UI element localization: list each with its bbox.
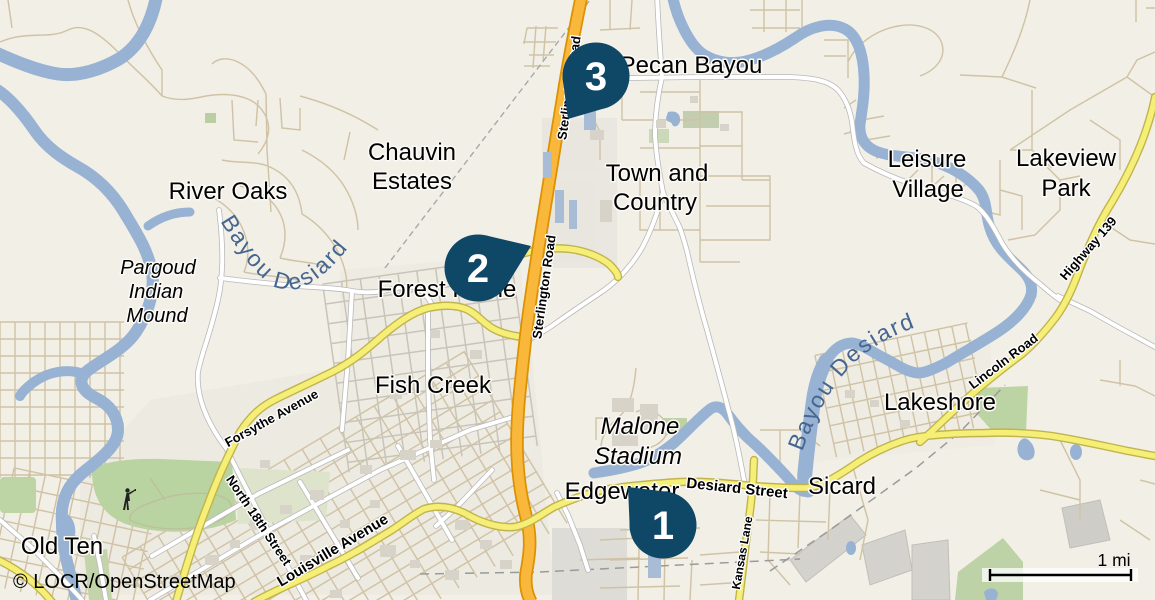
svg-text:Leisure: Leisure bbox=[888, 146, 967, 173]
svg-text:Stadium: Stadium bbox=[594, 443, 682, 470]
svg-text:1: 1 bbox=[652, 504, 674, 548]
svg-text:2: 2 bbox=[467, 247, 489, 291]
svg-text:Sicard: Sicard bbox=[808, 473, 876, 500]
svg-text:© LOCR/OpenStreetMap: © LOCR/OpenStreetMap bbox=[13, 571, 236, 593]
svg-text:River Oaks: River Oaks bbox=[169, 178, 288, 205]
svg-text:Pecan Bayou: Pecan Bayou bbox=[620, 52, 763, 79]
svg-text:Estates: Estates bbox=[372, 168, 452, 195]
svg-text:1 mi: 1 mi bbox=[1097, 550, 1130, 570]
svg-text:3: 3 bbox=[585, 55, 607, 99]
svg-text:Mound: Mound bbox=[126, 305, 188, 327]
svg-text:Park: Park bbox=[1041, 175, 1091, 202]
svg-text:Indian: Indian bbox=[129, 281, 184, 303]
svg-text:Lakeview: Lakeview bbox=[1016, 145, 1117, 172]
svg-text:Pargoud: Pargoud bbox=[120, 257, 196, 279]
svg-text:Village: Village bbox=[892, 176, 964, 203]
svg-text:Malone: Malone bbox=[601, 413, 680, 440]
svg-text:Town and: Town and bbox=[606, 160, 709, 187]
svg-text:Old Ten: Old Ten bbox=[21, 533, 103, 560]
svg-text:Country: Country bbox=[613, 189, 697, 216]
svg-text:Chauvin: Chauvin bbox=[368, 139, 456, 166]
svg-text:Lakeshore: Lakeshore bbox=[884, 389, 996, 416]
svg-text:Fish Creek: Fish Creek bbox=[375, 372, 492, 399]
